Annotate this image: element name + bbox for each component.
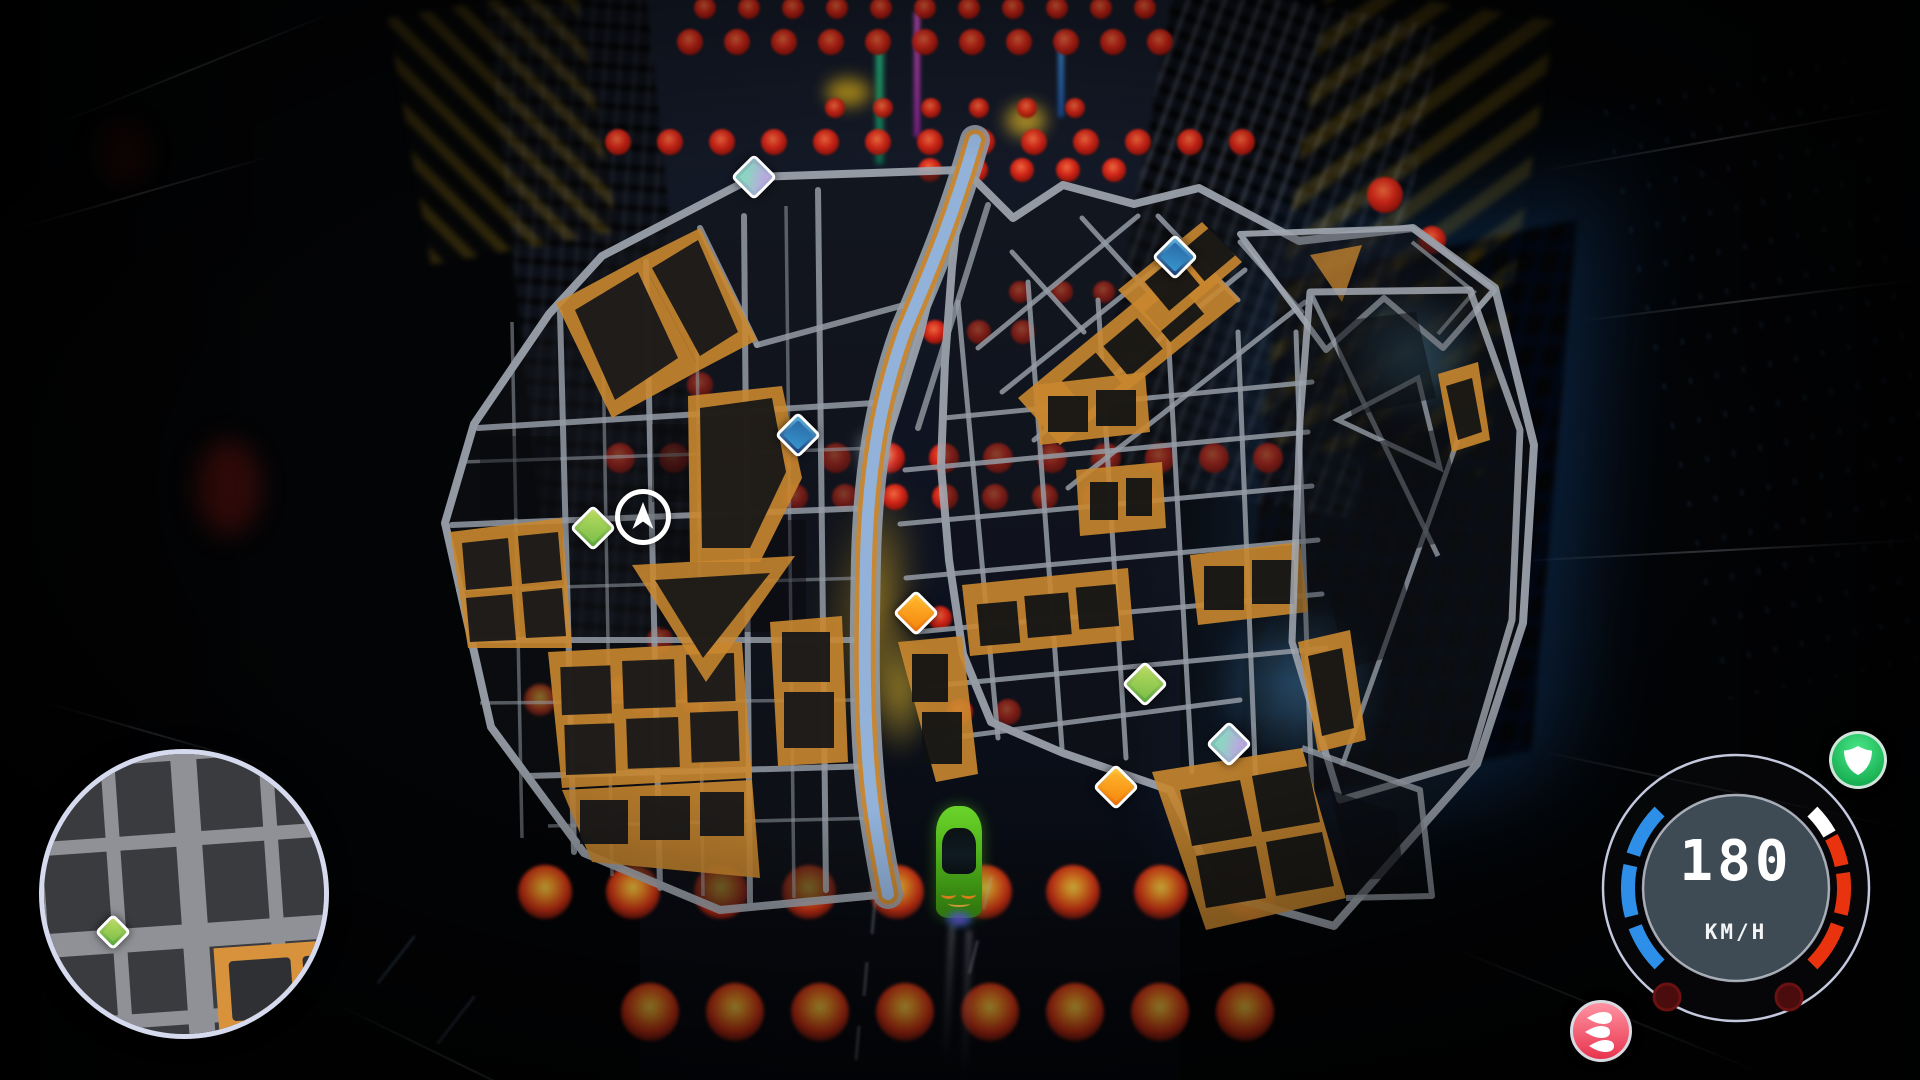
player-car [936, 806, 982, 918]
map-marker-core [783, 420, 813, 450]
game-screen: 180 KM/H [0, 0, 1920, 1080]
map-marker-core [578, 513, 608, 543]
map-marker-core [1101, 772, 1131, 802]
map-marker-core [739, 162, 769, 192]
shield-icon [1832, 734, 1884, 786]
map-marker-core [1160, 242, 1190, 272]
car-glass [942, 828, 976, 874]
map-marker-core [1214, 729, 1244, 759]
speed-unit: KM/H [1586, 920, 1886, 944]
minimap-marker-layer [44, 754, 324, 1034]
map-marker-core [103, 922, 123, 942]
map-marker-green[interactable] [570, 505, 617, 552]
map-marker-core [1130, 669, 1160, 699]
map-marker-orange[interactable] [1093, 764, 1140, 811]
map-marker-teal[interactable] [731, 154, 778, 201]
speedometer-indicator-light [1776, 984, 1802, 1010]
map-marker-green[interactable] [95, 914, 132, 951]
map-marker-blue[interactable] [1152, 234, 1199, 281]
car-taillight [948, 900, 970, 907]
player-arrow-icon [620, 494, 666, 540]
player-map-indicator [615, 489, 671, 545]
speed-value: 180 [1586, 834, 1886, 890]
car-taillight [961, 890, 976, 899]
nitro-icon [1573, 1003, 1629, 1059]
map-marker-green[interactable] [1122, 661, 1169, 708]
shield-badge [1829, 731, 1887, 789]
map-marker-blue[interactable] [775, 412, 822, 459]
nitro-badge [1570, 1000, 1632, 1062]
map-marker-core [901, 598, 931, 628]
map-marker-teal[interactable] [1206, 721, 1253, 768]
car-taillight [941, 890, 956, 899]
speedometer-indicator-light [1654, 984, 1680, 1010]
minimap [39, 749, 329, 1039]
map-marker-orange[interactable] [893, 590, 940, 637]
